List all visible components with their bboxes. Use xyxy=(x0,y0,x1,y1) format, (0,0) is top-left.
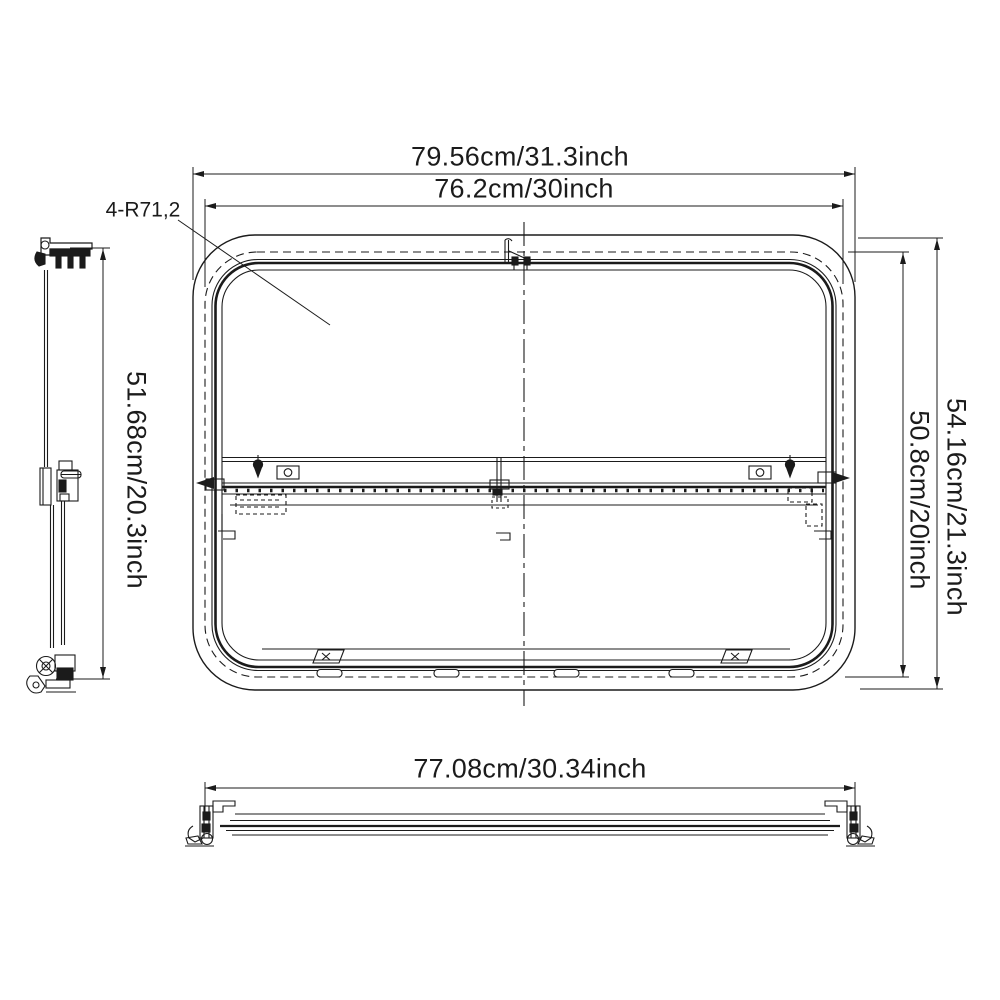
drain-slot xyxy=(434,670,459,678)
dim-label-right-outer: 54.16cm/21.3inch xyxy=(943,398,970,616)
left-latch-knob xyxy=(253,455,299,479)
front-slider-bar xyxy=(196,455,850,540)
side-profile-view xyxy=(27,238,92,693)
dim-label-top-outer: 79.56cm/31.3inch xyxy=(411,144,629,171)
technical-drawing-canvas: 79.56cm/31.3inch 76.2cm/30inch 4-R71,2 5… xyxy=(0,0,1000,1000)
dim-label-right-inner: 50.8cm/20inch xyxy=(906,410,933,590)
front-bottom-rail xyxy=(262,649,790,677)
dim-label-bottom-width: 77.08cm/30.34inch xyxy=(413,756,646,783)
corner-radius-leader xyxy=(178,220,330,325)
dim-label-top-inner: 76.2cm/30inch xyxy=(434,176,614,203)
drain-slot xyxy=(317,670,342,678)
right-latch-knob xyxy=(749,455,795,479)
front-view-frame xyxy=(193,222,855,706)
top-latch-detail xyxy=(505,239,531,270)
corner-radius-note: 4-R71,2 xyxy=(106,200,181,221)
dim-label-left-height: 51.68cm/20.3inch xyxy=(123,371,150,589)
drain-slot xyxy=(554,670,579,678)
bar-center-latch xyxy=(490,458,510,540)
bottom-profile-view xyxy=(185,801,875,846)
drain-slot xyxy=(669,670,694,678)
